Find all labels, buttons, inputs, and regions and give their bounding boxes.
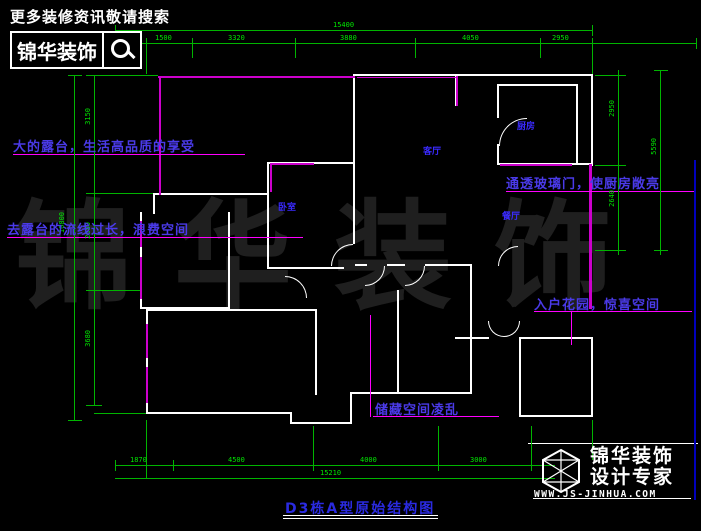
dimension-line (94, 193, 153, 194)
leader-line (370, 315, 371, 417)
annotation-glass-door: 通透玻璃门，使厨房敞亮 (506, 173, 660, 192)
annotation-flow: 去露台的流线过长，浪费空间 (7, 219, 189, 238)
accent-wall-segment (158, 76, 355, 78)
accent-wall-segment (140, 257, 142, 299)
wall-segment (397, 290, 399, 393)
dimension-line (115, 478, 555, 479)
dimension-line (654, 70, 668, 71)
dimension-line (595, 250, 618, 251)
dimension-line (115, 43, 592, 44)
wall-segment (153, 193, 269, 195)
door-arc (504, 321, 520, 337)
cad-canvas: 锦华装饰 更多装修资讯敬请搜索 锦华装饰 15400 1500 3320 388… (0, 0, 701, 531)
dimension-line (438, 460, 439, 471)
annotation-entry-garden: 入户花园，惊喜空间 (534, 294, 660, 313)
accent-wall-segment (270, 163, 314, 165)
wall-segment (267, 267, 344, 269)
wall-segment (315, 309, 317, 395)
drawing-title: D3栋A型原始结构图 (285, 498, 435, 518)
banner-tagline: 更多装修资讯敬请搜索 (10, 6, 170, 27)
dimension-label: 3000 (470, 456, 487, 464)
wall-segment (497, 84, 578, 86)
annotation-storage: 储藏空间凌乱 (375, 399, 459, 418)
wall-segment (519, 415, 593, 417)
dimension-label: 3150 (84, 108, 92, 125)
dimension-line (94, 75, 158, 76)
accent-wall-segment (270, 163, 272, 192)
dimension-line (438, 426, 439, 460)
dimension-line (592, 25, 593, 36)
dimension-line (173, 460, 174, 471)
dimension-line (540, 48, 541, 58)
wall-segment (350, 392, 472, 394)
wall-segment (353, 74, 355, 164)
dimension-line (592, 48, 593, 74)
dimension-line (595, 75, 618, 76)
door-arc (488, 321, 504, 337)
accent-wall-segment (146, 324, 148, 358)
dimension-line (146, 420, 147, 478)
dimension-line (696, 38, 697, 49)
accent-wall-segment (357, 77, 456, 78)
dimension-label: 1500 (155, 34, 172, 42)
dimension-line (313, 460, 314, 471)
wall-segment (576, 84, 578, 165)
wall-segment (228, 212, 230, 309)
wall-segment (497, 144, 499, 165)
cube-logo-icon (538, 448, 584, 494)
search-icon (104, 33, 140, 67)
wall-segment (455, 337, 489, 339)
wall-segment (425, 264, 472, 266)
wall-segment (355, 74, 593, 76)
dimension-line (592, 43, 697, 44)
room-label-living: 客厅 (423, 144, 441, 157)
dimension-label: 4050 (462, 34, 479, 42)
wall-segment (519, 337, 593, 339)
company-logo-block: 锦华装饰 设计专家 WWW.JS-JINHUA.COM (528, 444, 698, 504)
wall-segment (290, 422, 352, 424)
dimension-line (115, 460, 116, 471)
dimension-line (115, 30, 592, 31)
wall-segment (387, 264, 405, 266)
wall-segment (146, 309, 317, 311)
dimension-line (313, 426, 314, 460)
dimension-line (295, 48, 296, 58)
wall-segment (353, 162, 355, 244)
dimension-line (660, 70, 661, 255)
dimension-label: 3320 (228, 34, 245, 42)
wall-segment (519, 337, 521, 417)
dimension-line (94, 413, 146, 414)
room-label-bedroom: 卧室 (278, 200, 296, 213)
wall-segment (591, 74, 593, 166)
logo-subtitle: 设计专家 (590, 467, 674, 488)
dimension-line (86, 405, 102, 406)
dimension-label: 15210 (320, 469, 341, 477)
dimension-label: 4000 (360, 456, 377, 464)
leader-line (571, 311, 572, 345)
accent-wall-segment (456, 76, 458, 106)
dimension-line (415, 48, 416, 58)
rule-line (283, 518, 438, 519)
room-label-dining: 餐厅 (502, 209, 520, 222)
dimension-label: 3680 (84, 330, 92, 347)
wall-segment (153, 193, 155, 214)
dimension-line (654, 250, 668, 251)
room-label-kitchen: 厨房 (517, 119, 535, 132)
accent-wall-segment (146, 367, 148, 403)
wall-segment (267, 162, 269, 269)
wall-segment (146, 412, 292, 414)
dimension-line (115, 465, 555, 466)
banner-brand-text: 锦华装饰 (12, 33, 104, 67)
dimension-line (618, 70, 619, 255)
accent-wall-segment (500, 164, 572, 166)
wall-segment (350, 392, 352, 424)
dimension-label: 5590 (650, 138, 658, 155)
dimension-label: 2950 (608, 100, 616, 117)
promo-banner: 更多装修资讯敬请搜索 锦华装饰 (10, 6, 170, 69)
dimension-line (68, 420, 82, 421)
logo-brand: 锦华装饰 (590, 446, 674, 467)
logo-website: WWW.JS-JINHUA.COM (534, 489, 657, 500)
dimension-line (74, 75, 75, 421)
wall-segment (470, 264, 472, 393)
dimension-line (94, 75, 95, 406)
dimension-label: 2640 (608, 190, 616, 207)
wall-segment (497, 84, 499, 118)
dimension-label: 2950 (552, 34, 569, 42)
dimension-line (68, 75, 82, 76)
dimension-line (192, 48, 193, 58)
annotation-terrace: 大的露台，生活高品质的享受 (13, 136, 195, 155)
wall-segment (591, 337, 593, 417)
search-icon-circle (111, 39, 130, 58)
dimension-label: 4500 (228, 456, 245, 464)
dimension-line (595, 165, 618, 166)
dimension-line (94, 290, 140, 291)
banner-brand-box: 锦华装饰 (10, 31, 142, 69)
dimension-label: 3880 (340, 34, 357, 42)
dimension-label: 15400 (333, 21, 354, 29)
dimension-label: 1870 (130, 456, 147, 464)
